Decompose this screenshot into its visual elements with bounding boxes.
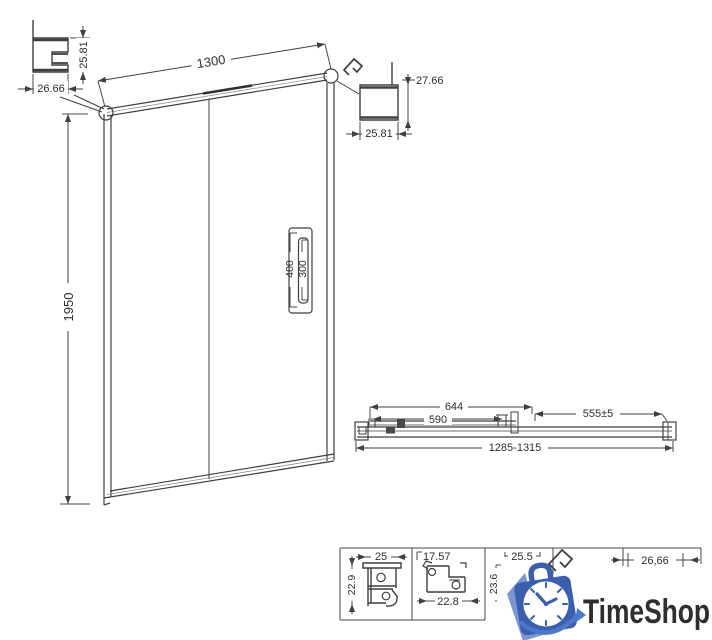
wall-hook-profile-icon [344, 59, 362, 75]
dim-label-22-9: 22.9 [346, 575, 358, 596]
dim-handle-outer: 400 [284, 233, 297, 307]
dim-label-1285-1315: 1285-1315 [489, 442, 542, 454]
dim-plan-590: 590 [373, 412, 502, 426]
sliding-track-segment [203, 86, 252, 94]
dim-top-left-width: 26.66 [18, 74, 83, 95]
dim-plan-555: 555±5 [535, 406, 667, 421]
dim-profile3-height: 23.6 [486, 565, 501, 602]
dim-label-26-66-top: 26.66 [37, 83, 65, 95]
dim-door-height: 1950 [60, 114, 90, 504]
bottom-profile-1 [363, 563, 401, 606]
dim-top-right-height: 27.66 [402, 74, 444, 131]
bottom-profile-2 [423, 561, 466, 592]
dim-profile1-width: 25 [356, 550, 407, 563]
roller-right [324, 69, 338, 83]
dim-label-1300: 1300 [196, 52, 227, 71]
dim-label-23-6: 23.6 [488, 574, 500, 595]
dim-profile3-width: 25.5 [505, 549, 540, 563]
dim-label-22-8: 22.8 [437, 596, 458, 608]
dim-profile1-height: 22.9 [344, 556, 358, 614]
technical-drawing-page: 26.66 25.81 [0, 0, 712, 640]
dim-label-400: 400 [284, 260, 296, 278]
dim-label-25-81-top-right: 25.81 [365, 128, 393, 140]
plan-view [355, 412, 676, 440]
dim-label-300: 300 [297, 260, 309, 278]
dim-label-17-57: 17.57 [423, 551, 451, 563]
dim-label-1950: 1950 [61, 293, 76, 322]
top-right-profile-section [337, 59, 398, 120]
dim-label-590: 590 [429, 414, 447, 426]
dim-profile2-bottom: 22.8 [417, 594, 480, 608]
dim-label-555: 555±5 [583, 408, 614, 420]
overlap-seal [511, 412, 518, 433]
wall-hook-profile-large-icon [549, 550, 572, 571]
panel-clip [397, 419, 405, 428]
dim-label-25-5: 25.5 [511, 551, 532, 563]
dim-door-width: 1300 [98, 44, 331, 107]
dim-label-27-66: 27.66 [416, 75, 444, 87]
dim-label-25: 25 [375, 551, 387, 563]
dim-top-left-height: 25.81 [70, 26, 90, 84]
shower-door-technical-drawing: 26.66 25.81 [0, 0, 712, 640]
top-left-profile-section [33, 20, 104, 112]
dim-label-25-81-top-left: 25.81 [78, 41, 90, 69]
dim-profile2-width: 17.57 [417, 551, 451, 563]
dim-plan-overall: 1285-1315 [356, 440, 673, 454]
dim-profile5-width: 26,66 [611, 553, 700, 567]
dim-label-644: 644 [445, 401, 463, 413]
rail-clip [386, 428, 395, 434]
dim-top-right-width: 25.81 [346, 122, 412, 140]
timeshop-logo: TimeShop [507, 561, 710, 640]
dim-label-26-66-bottom: 26,66 [641, 555, 669, 567]
logo-wordmark: TimeShop [583, 593, 710, 631]
